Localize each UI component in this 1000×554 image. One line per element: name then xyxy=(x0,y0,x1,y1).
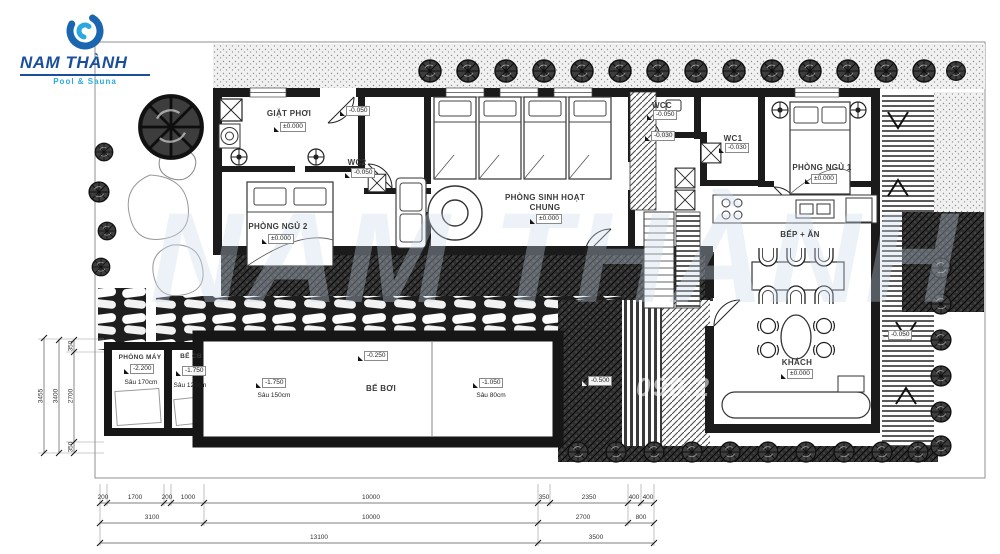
dim-b2-800: 800 xyxy=(636,514,647,521)
dim-b2-10000: 10000 xyxy=(362,514,380,521)
elevation-sinh-hoat-chung: ±0.000 xyxy=(530,214,562,224)
elevation-deck: -0.500 xyxy=(582,376,612,386)
elevation-phong-ngu-1: ±0.000 xyxy=(805,174,837,184)
dim-b1-1700: 1700 xyxy=(128,494,142,501)
elevation-terrace: -0.050 xyxy=(882,330,912,340)
room-label-wc1: WC1 xyxy=(724,134,743,143)
room-label-be-boi: BỂ BƠI xyxy=(366,384,396,393)
dim-b1-1000: 1000 xyxy=(181,494,195,501)
depth-pool-deep: Sâu 80cm xyxy=(476,392,505,399)
elevation-entry: -0.050 xyxy=(340,106,370,116)
elevation-wc1: -0.030 xyxy=(719,143,749,153)
elevation-phong-may: -2.200 xyxy=(124,364,154,374)
logo-title: NAM THÀNH xyxy=(20,53,150,76)
elevation-khach: ±0.000 xyxy=(781,369,813,379)
room-label-phong-may: PHÒNG MÁY xyxy=(119,354,162,361)
floor-plan-sheet: NAM THÀNH 090.2 NAM THÀNH Pool & Sauna G… xyxy=(0,0,1000,554)
dim-b1-400: 400 xyxy=(629,494,640,501)
dim-b1-200b: 200 xyxy=(162,494,173,501)
dim-b3-3500: 3500 xyxy=(589,534,603,541)
room-label-khach: KHÁCH xyxy=(782,358,812,367)
depth-pool-shallow: Sâu 150cm xyxy=(258,392,291,399)
dim-l-350-top: 350 xyxy=(68,341,75,352)
room-label-wcc: WCC xyxy=(652,101,672,110)
dim-l-350-bottom: 350 xyxy=(68,442,75,453)
company-logo: NAM THÀNH Pool & Sauna xyxy=(20,10,150,86)
floorplan-drawing xyxy=(0,0,1000,554)
depth-be-cb: Sâu 120cm xyxy=(174,382,207,389)
trees-left xyxy=(89,96,202,276)
elevation-be-cb: -1.750 xyxy=(176,366,206,376)
dim-b1-200: 200 xyxy=(98,494,109,501)
logo-tagline: Pool & Sauna xyxy=(20,77,150,86)
elevation-pool-shallow: -1.750 xyxy=(256,378,286,388)
room-label-giat-phoi: GIẶT PHƠI xyxy=(267,109,311,118)
dim-b2-3100: 3100 xyxy=(145,514,159,521)
dim-l-3400: 3400 xyxy=(53,389,60,403)
dim-b1-2350: 2350 xyxy=(582,494,596,501)
garden-pond xyxy=(128,148,203,295)
dim-b1-400b: 400 xyxy=(643,494,654,501)
room-label-be-cb: BỂ CB xyxy=(180,353,202,360)
room-label-wc2: WC2 xyxy=(348,158,367,167)
room-label-phong-ngu-1: PHÒNG NGỦ 1 xyxy=(792,163,851,172)
elevation-phong-ngu-2: ±0.000 xyxy=(262,234,294,244)
elevation-wcc: -0.050 xyxy=(647,110,677,120)
depth-phong-may: Sâu 170cm xyxy=(125,379,158,386)
logo-swirl-icon xyxy=(62,10,108,52)
elevation-giat-phoi: ±0.000 xyxy=(274,122,306,132)
room-label-sinh-hoat-chung: PHÒNG SINH HOẠT CHUNG xyxy=(502,193,588,213)
pool xyxy=(104,336,558,442)
dim-l-3455: 3455 xyxy=(38,389,45,403)
room-label-bep-an: BẾP + ĂN xyxy=(780,230,819,239)
elevation-pool-deep: -1.050 xyxy=(473,378,503,388)
elevation-wc2: -0.050 xyxy=(345,168,375,178)
dim-b1-10000: 10000 xyxy=(362,494,380,501)
trees-top xyxy=(419,60,965,82)
dim-b1-350: 350 xyxy=(539,494,550,501)
dim-b2-2700: 2700 xyxy=(576,514,590,521)
room-label-phong-ngu-2: PHÒNG NGỦ 2 xyxy=(248,222,307,231)
elevation-hall: -0.030 xyxy=(645,131,675,141)
dim-b3-13100: 13100 xyxy=(310,534,328,541)
elevation-pool-edge: -0.250 xyxy=(358,351,388,361)
dim-l-2700: 2700 xyxy=(68,389,75,403)
